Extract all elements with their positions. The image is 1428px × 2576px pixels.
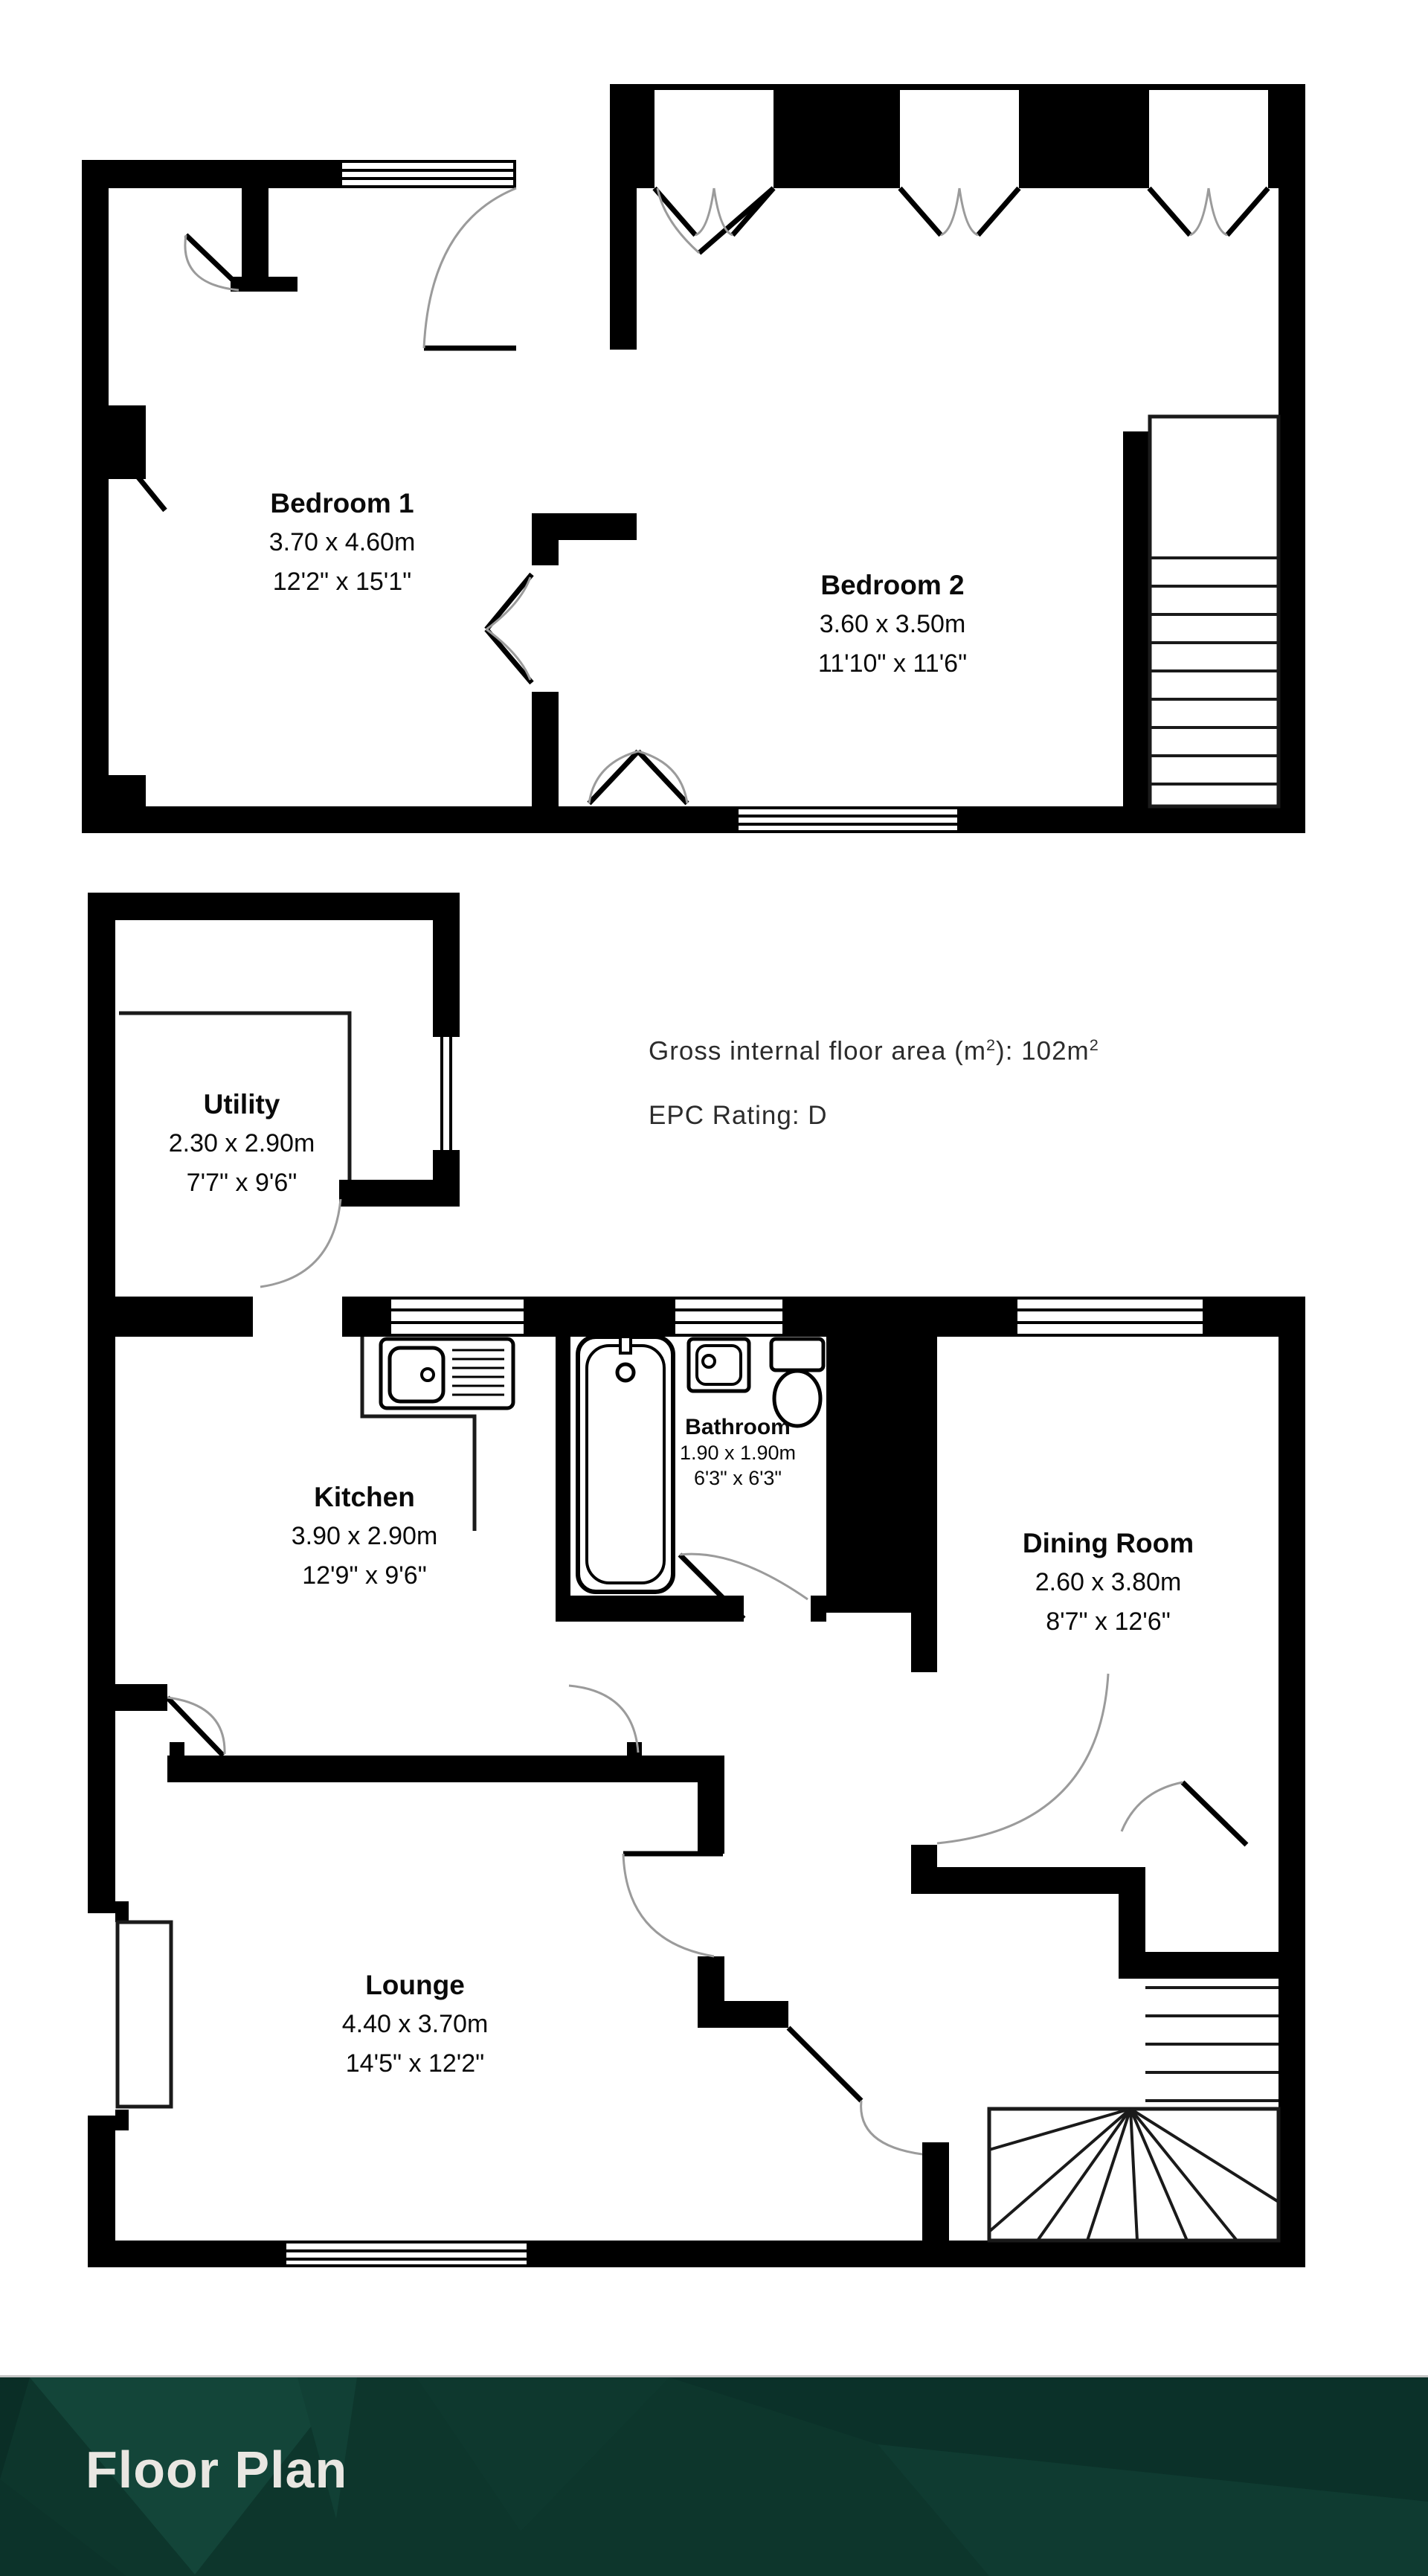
room-imperial: 8'7" x 12'6": [1023, 1602, 1194, 1642]
room-name: Bedroom 2: [818, 565, 967, 605]
room-label-bedroom-1: Bedroom 1 3.70 x 4.60m 12'2" x 15'1": [269, 484, 416, 602]
room-name: Lounge: [342, 1965, 489, 2005]
room-metric: 3.90 x 2.90m: [292, 1517, 438, 1556]
room-imperial: 6'3" x 6'3": [680, 1465, 796, 1491]
room-metric: 1.90 x 1.90m: [680, 1440, 796, 1465]
room-name: Bathroom: [680, 1415, 796, 1440]
room-imperial: 7'7" x 9'6": [169, 1163, 315, 1203]
room-label-utility: Utility 2.30 x 2.90m 7'7" x 9'6": [169, 1085, 315, 1203]
banner-title: Floor Plan: [86, 2440, 347, 2499]
room-metric: 2.60 x 3.80m: [1023, 1563, 1194, 1602]
room-imperial: 12'9" x 9'6": [292, 1556, 438, 1596]
footer-banner: Floor Plan: [0, 2375, 1428, 2576]
room-label-bedroom-2: Bedroom 2 3.60 x 3.50m 11'10" x 11'6": [818, 565, 967, 684]
gross-area-text: Gross internal floor area (m2): 102m2: [649, 1035, 1099, 1067]
epc-rating-text: EPC Rating: D: [649, 1101, 1099, 1131]
room-name: Utility: [169, 1085, 315, 1124]
room-metric: 3.60 x 3.50m: [818, 605, 967, 644]
room-name: Dining Room: [1023, 1523, 1194, 1563]
room-label-bathroom: Bathroom 1.90 x 1.90m 6'3" x 6'3": [680, 1415, 796, 1491]
room-imperial: 12'2" x 15'1": [269, 562, 416, 602]
room-metric: 3.70 x 4.60m: [269, 523, 416, 562]
floorplan-drawing: [0, 0, 1428, 2576]
floorplan-page: Bedroom 1 3.70 x 4.60m 12'2" x 15'1" Bed…: [0, 0, 1428, 2576]
room-metric: 2.30 x 2.90m: [169, 1124, 315, 1163]
room-imperial: 14'5" x 12'2": [342, 2044, 489, 2084]
plan-info: Gross internal floor area (m2): 102m2 EP…: [649, 1035, 1099, 1131]
room-label-kitchen: Kitchen 3.90 x 2.90m 12'9" x 9'6": [292, 1477, 438, 1596]
room-label-lounge: Lounge 4.40 x 3.70m 14'5" x 12'2": [342, 1965, 489, 2084]
room-label-dining-room: Dining Room 2.60 x 3.80m 8'7" x 12'6": [1023, 1523, 1194, 1642]
room-name: Kitchen: [292, 1477, 438, 1517]
room-metric: 4.40 x 3.70m: [342, 2005, 489, 2044]
room-imperial: 11'10" x 11'6": [818, 644, 967, 684]
room-name: Bedroom 1: [269, 484, 416, 523]
